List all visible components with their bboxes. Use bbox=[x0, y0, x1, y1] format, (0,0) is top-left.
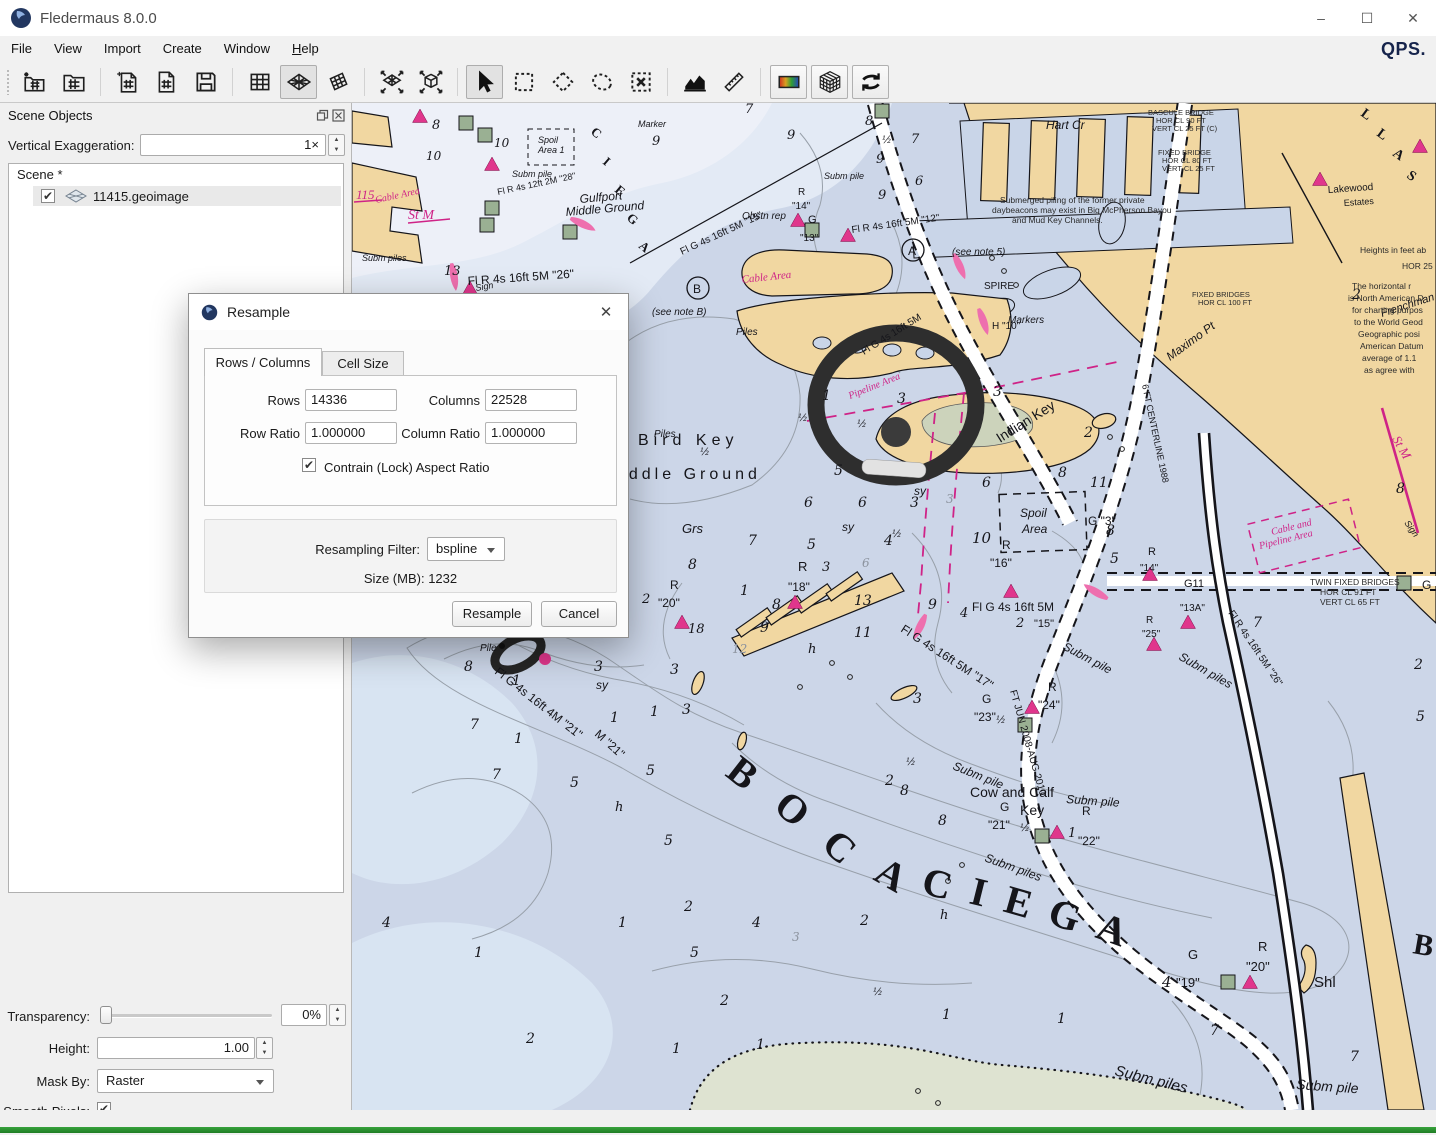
grid-view-button[interactable] bbox=[241, 65, 278, 99]
column-ratio-label: Column Ratio bbox=[390, 426, 480, 441]
map-label: 5 bbox=[807, 537, 816, 553]
toolbar-drag-handle[interactable] bbox=[6, 69, 11, 95]
map-label: 6 bbox=[804, 495, 813, 511]
map-label: 9 bbox=[928, 597, 937, 613]
fit-grid-icon bbox=[378, 68, 406, 96]
map-label: TWIN FIXED BRIDGES bbox=[1310, 577, 1400, 587]
transparency-slider[interactable] bbox=[100, 1006, 272, 1024]
map-label: Marker bbox=[638, 119, 667, 129]
map-label: Shl bbox=[1314, 974, 1336, 991]
rect-select-icon bbox=[511, 69, 537, 95]
map-label: 6 bbox=[982, 475, 991, 491]
progress-bar bbox=[0, 1127, 1436, 1133]
map-label: HOR CL 91 FT bbox=[1320, 587, 1376, 597]
map-label: HOR 25 bbox=[1402, 261, 1433, 271]
open-scene-button[interactable] bbox=[55, 65, 92, 99]
map-label: R bbox=[798, 559, 807, 574]
panel-title: Scene Objects bbox=[8, 108, 93, 123]
fit-cube-icon bbox=[417, 68, 445, 96]
daymark-square-icon bbox=[480, 218, 494, 232]
map-label: Pile bbox=[480, 643, 497, 654]
map-label: (see note B) bbox=[652, 307, 706, 318]
map-label: R bbox=[1048, 680, 1057, 694]
open-scene-icon bbox=[61, 69, 87, 95]
map-label: R bbox=[1258, 939, 1267, 954]
map-label: St M bbox=[408, 208, 435, 223]
map-label: 13 bbox=[444, 264, 461, 279]
map-label: H "10" bbox=[992, 321, 1021, 332]
map-label: B bbox=[693, 282, 701, 296]
polygon-select-icon bbox=[550, 69, 576, 95]
map-label: 8 bbox=[464, 659, 473, 675]
map-label: 7 bbox=[492, 767, 501, 783]
map-label: "18" bbox=[788, 580, 810, 594]
columns-label: Columns bbox=[400, 393, 480, 408]
map-label: "15" bbox=[1034, 618, 1054, 630]
map-label: as agree with bbox=[1364, 365, 1415, 375]
map-label: "24" bbox=[1038, 698, 1060, 712]
map-label: Submerged piling of the former private bbox=[1000, 195, 1145, 205]
lasso-select-icon bbox=[589, 69, 615, 95]
map-label: 3 bbox=[910, 495, 919, 511]
map-label: Area 1 bbox=[537, 145, 565, 155]
cursor-icon bbox=[472, 69, 498, 95]
map-label: 11 bbox=[854, 625, 872, 641]
map-label: American Datum bbox=[1360, 341, 1423, 351]
vertical-exaggeration-input[interactable]: 1× bbox=[140, 134, 326, 156]
map-label: HOR CL 100 FT bbox=[1198, 298, 1252, 307]
map-label: 10 bbox=[426, 149, 442, 163]
map-label: Spoil bbox=[538, 135, 559, 145]
map-label: ½ bbox=[892, 529, 902, 540]
map-label: 7 bbox=[745, 103, 754, 117]
rotate-view-button[interactable] bbox=[852, 65, 889, 99]
tree-row-geoimage[interactable]: ✔ 11415.geoimage bbox=[33, 186, 341, 206]
map-label: 2 bbox=[884, 773, 894, 789]
map-label: 8 bbox=[1396, 481, 1405, 497]
map-label: R bbox=[1082, 804, 1091, 818]
save-button[interactable] bbox=[187, 65, 224, 99]
map-label: 1 bbox=[822, 388, 831, 404]
map-label: "13" bbox=[800, 233, 819, 244]
map-label: 2 bbox=[1083, 425, 1093, 441]
surface-view-icon bbox=[286, 69, 312, 95]
height-label: Height: bbox=[0, 1041, 90, 1056]
map-label: daybeacons may exist in Big McPherson Ba… bbox=[992, 205, 1172, 215]
fledermaus-logo-icon bbox=[201, 304, 218, 321]
map-label: R bbox=[670, 578, 679, 592]
toolbar-separator bbox=[232, 68, 233, 96]
map-label: 2 bbox=[859, 913, 869, 929]
chevron-down-icon bbox=[256, 1080, 264, 1085]
map-label: R bbox=[1146, 615, 1153, 626]
map-label: 5 bbox=[646, 763, 655, 779]
lock-aspect-label: Contrain (Lock) Aspect Ratio bbox=[324, 460, 489, 475]
transparency-value[interactable]: 0% bbox=[281, 1004, 327, 1026]
map-label: 9 bbox=[878, 188, 886, 203]
grid-icon bbox=[247, 69, 273, 95]
map-label: Grs bbox=[682, 521, 703, 536]
dialog-title: Resample bbox=[227, 304, 290, 320]
map-label: for charting purpos bbox=[1352, 305, 1423, 315]
map-label: 3 bbox=[670, 662, 679, 678]
map-label: 8 bbox=[1058, 465, 1067, 481]
map-label: Fl G 4s 16ft 5M bbox=[972, 600, 1054, 614]
map-label: G bbox=[808, 214, 817, 226]
map-label: 10 bbox=[972, 529, 992, 547]
map-label: 5 bbox=[834, 463, 843, 479]
menu-window[interactable]: Window bbox=[213, 36, 281, 62]
map-label: Estates bbox=[1343, 196, 1374, 208]
new-object-button[interactable] bbox=[109, 65, 146, 99]
map-label: "14" bbox=[792, 201, 811, 212]
map-label: 2 bbox=[1413, 657, 1423, 673]
map-label: 4 bbox=[751, 915, 761, 931]
map-label: A bbox=[908, 244, 916, 258]
map-label: 1 bbox=[474, 945, 483, 961]
map-label: sy bbox=[596, 678, 609, 692]
map-label: 4 bbox=[1161, 973, 1172, 991]
colormap-icon bbox=[776, 69, 802, 95]
map-label: Spoil bbox=[1020, 506, 1047, 520]
map-label: Area bbox=[1021, 522, 1048, 536]
cube-grid-button[interactable] bbox=[811, 65, 848, 99]
spin-up-icon[interactable]: ▲ bbox=[329, 135, 344, 145]
menu-create[interactable]: Create bbox=[152, 36, 213, 62]
tab-rows-columns[interactable]: Rows / Columns bbox=[204, 348, 322, 376]
map-label: ½ bbox=[798, 413, 808, 424]
map-label: 3 bbox=[682, 702, 691, 718]
map-label: 3 bbox=[792, 930, 800, 944]
map-label: 3 bbox=[822, 560, 830, 575]
row-ratio-label: Row Ratio bbox=[225, 426, 300, 441]
tab-cell-size[interactable]: Cell Size bbox=[322, 351, 404, 376]
map-label: 1 bbox=[1068, 826, 1076, 841]
lock-aspect-checkbox[interactable]: ✔ bbox=[302, 458, 316, 472]
title-bar: Fledermaus 8.0.0 – ☐ ✕ bbox=[0, 0, 1436, 36]
map-label: 8 bbox=[772, 597, 781, 613]
map-label: 1 bbox=[756, 1037, 765, 1053]
map-label: 11 bbox=[1090, 475, 1108, 491]
map-label: 1 bbox=[512, 673, 521, 689]
map-label: "21" bbox=[988, 818, 1010, 832]
daymark-square-icon bbox=[1221, 975, 1235, 989]
daymark-square-icon bbox=[478, 128, 492, 142]
map-label: 4 bbox=[381, 915, 391, 931]
new-scene-icon bbox=[22, 69, 48, 95]
rows-label: Rows bbox=[225, 393, 300, 408]
fit-grid-button[interactable] bbox=[373, 65, 410, 99]
map-label: Subm pile bbox=[824, 171, 864, 181]
vertical-exaggeration-stepper[interactable]: ▲▼ bbox=[328, 134, 345, 156]
height-input[interactable]: 1.00 bbox=[97, 1037, 255, 1059]
map-label: 2 bbox=[683, 899, 693, 915]
filter-group: Resampling Filter: bspline Size (MB): 12… bbox=[204, 519, 617, 593]
column-ratio-input[interactable]: 1.000000 bbox=[485, 422, 577, 444]
clear-select-button[interactable] bbox=[622, 65, 659, 99]
map-label: Hart Cr bbox=[1046, 118, 1086, 132]
map-label: 18 bbox=[688, 622, 705, 637]
size-label: Size (MB): bbox=[364, 571, 425, 586]
open-object-button[interactable] bbox=[148, 65, 185, 99]
menu-view[interactable]: View bbox=[43, 36, 93, 62]
window-title: Fledermaus 8.0.0 bbox=[40, 10, 157, 27]
map-label: 5 bbox=[570, 775, 579, 791]
toolbar-separator bbox=[667, 68, 668, 96]
map-label: 1 bbox=[618, 915, 627, 931]
tilted-grid-icon bbox=[325, 69, 351, 95]
map-label: 9 bbox=[760, 620, 769, 636]
slider-handle[interactable] bbox=[100, 1006, 112, 1024]
map-label: 6 bbox=[915, 174, 923, 189]
map-label: G bbox=[982, 692, 991, 706]
map-label: 7 bbox=[1253, 615, 1262, 631]
clear-select-icon bbox=[628, 69, 654, 95]
save-icon bbox=[193, 69, 219, 95]
map-label: "22" bbox=[1078, 834, 1100, 848]
map-label: 6 bbox=[858, 495, 867, 511]
scene-tree-root[interactable]: Scene * bbox=[17, 167, 63, 182]
toolbar bbox=[0, 62, 1436, 103]
map-label: Heights in feet ab bbox=[1360, 245, 1426, 255]
map-label: "20" bbox=[658, 596, 680, 610]
map-label: "14" bbox=[1140, 563, 1159, 574]
map-label: ½ bbox=[857, 419, 867, 430]
map-label: and Mud Key Channels. bbox=[1012, 215, 1103, 225]
map-label: R bbox=[1002, 538, 1011, 552]
map-label: "13A" bbox=[1180, 603, 1205, 614]
map-label: 1 bbox=[514, 731, 523, 747]
qps-logo: QPS. bbox=[1381, 36, 1426, 62]
map-label: 13 bbox=[854, 593, 872, 609]
map-label: Geographic posi bbox=[1358, 329, 1420, 339]
geoimage-layer-icon bbox=[65, 189, 87, 203]
map-label: ½ bbox=[906, 757, 916, 768]
resample-dialog: Resample ✕ Rows / Columns Cell Size Rows… bbox=[188, 293, 629, 638]
rows-columns-panel: Rows 14336 Columns 22528 Row Ratio 1.000… bbox=[204, 375, 617, 506]
profile-button[interactable] bbox=[676, 65, 713, 99]
lasso-select-button[interactable] bbox=[583, 65, 620, 99]
map-label: 7 bbox=[911, 132, 920, 147]
map-label: 5 bbox=[690, 945, 699, 961]
map-label: 9 bbox=[876, 152, 884, 167]
daymark-square-icon bbox=[563, 225, 577, 239]
map-label: 8 bbox=[938, 813, 947, 829]
map-label: "25" bbox=[1142, 629, 1161, 640]
map-label: 3 bbox=[897, 391, 906, 407]
map-label: SPIRE bbox=[984, 281, 1014, 292]
map-label: ½ bbox=[1020, 823, 1030, 834]
map-label: 2 bbox=[641, 592, 650, 607]
map-label: 3 bbox=[594, 659, 603, 675]
minimize-button[interactable]: – bbox=[1298, 0, 1344, 36]
open-object-icon bbox=[154, 69, 180, 95]
map-label: 8 bbox=[900, 783, 909, 799]
status-bar bbox=[0, 1110, 1436, 1135]
tilted-grid-button[interactable] bbox=[319, 65, 356, 99]
map-label: h bbox=[615, 800, 623, 815]
surface-view-button[interactable] bbox=[280, 65, 317, 99]
map-label: "20" bbox=[1246, 959, 1270, 974]
map-label: ½ bbox=[996, 715, 1006, 726]
map-label: VERT CL 25 FT (C) bbox=[1152, 124, 1218, 133]
map-label: 3 bbox=[913, 691, 922, 707]
map-label: 12 bbox=[732, 642, 747, 656]
map-label: 10 bbox=[494, 136, 510, 150]
map-label: ½ bbox=[882, 135, 892, 146]
menu-help[interactable]: Help bbox=[281, 36, 330, 62]
mask-by-label: Mask By: bbox=[0, 1074, 90, 1089]
toolbar-separator bbox=[760, 68, 761, 96]
map-label: h bbox=[808, 642, 816, 657]
colormap-button[interactable] bbox=[770, 65, 807, 99]
row-ratio-input[interactable]: 1.000000 bbox=[305, 422, 397, 444]
magenta-dot-icon bbox=[539, 653, 551, 665]
polygon-select-button[interactable] bbox=[544, 65, 581, 99]
menu-file[interactable]: File bbox=[0, 36, 43, 62]
measure-button[interactable] bbox=[715, 65, 752, 99]
map-label: 5 bbox=[1416, 709, 1425, 725]
resampling-filter-label: Resampling Filter: bbox=[265, 542, 420, 557]
dialog-title-bar[interactable]: Resample ✕ bbox=[189, 294, 628, 330]
map-label: VERT CL 65 FT bbox=[1320, 597, 1380, 607]
map-label: 1 bbox=[650, 704, 659, 720]
map-label: ½ bbox=[700, 447, 710, 458]
map-label: 115 bbox=[356, 187, 375, 202]
new-object-icon bbox=[115, 69, 141, 95]
map-label: 1 bbox=[942, 1007, 951, 1023]
map-label: 5 bbox=[664, 833, 673, 849]
fit-cube-button[interactable] bbox=[412, 65, 449, 99]
dialog-close-button[interactable]: ✕ bbox=[584, 294, 628, 330]
daymark-square-icon bbox=[459, 116, 473, 130]
map-label: 1 bbox=[1057, 1011, 1066, 1027]
map-label: Key bbox=[1020, 802, 1044, 818]
transparency-stepper[interactable]: ▲▼ bbox=[329, 1004, 346, 1026]
map-label: "23" bbox=[974, 710, 996, 724]
daymark-square-icon bbox=[875, 104, 889, 118]
map-label: 1 bbox=[672, 1041, 681, 1057]
height-stepper[interactable]: ▲▼ bbox=[256, 1037, 273, 1059]
vertical-exaggeration-label: Vertical Exaggeration: bbox=[8, 138, 134, 153]
map-label: 8 bbox=[1106, 523, 1115, 539]
rows-input[interactable]: 14336 bbox=[305, 389, 397, 411]
map-label: 2 bbox=[1351, 287, 1361, 303]
size-row: Size (MB): 1232 bbox=[205, 571, 616, 586]
cancel-button[interactable]: Cancel bbox=[541, 601, 617, 627]
map-label: 8 bbox=[865, 114, 873, 129]
close-button[interactable]: ✕ bbox=[1390, 0, 1436, 36]
map-label: 9 bbox=[652, 134, 660, 149]
map-label: "19" bbox=[1176, 975, 1200, 990]
map-label: to the World Geod bbox=[1354, 317, 1423, 327]
new-scene-button[interactable] bbox=[16, 65, 53, 99]
mask-by-value: Raster bbox=[106, 1073, 144, 1088]
map-label: R bbox=[1148, 546, 1156, 558]
chevron-down-icon bbox=[487, 548, 495, 553]
map-label: 8 bbox=[432, 118, 440, 133]
map-label: 7 bbox=[1210, 1023, 1219, 1039]
map-label: "16" bbox=[990, 556, 1012, 570]
map-label: G11 bbox=[1184, 578, 1204, 590]
toolbar-separator bbox=[457, 68, 458, 96]
rect-select-button[interactable] bbox=[505, 65, 542, 99]
map-label: Piles bbox=[736, 327, 758, 338]
map-label: 2 bbox=[1015, 616, 1024, 631]
map-label: 2 bbox=[525, 1031, 535, 1047]
map-label: R bbox=[798, 187, 805, 198]
map-label: average of 1.1 bbox=[1362, 353, 1417, 363]
close-panel-icon[interactable] bbox=[332, 109, 345, 122]
cube-grid-icon bbox=[817, 69, 843, 95]
map-label: ½ bbox=[873, 987, 883, 998]
toolbar-separator bbox=[364, 68, 365, 96]
map-label: 4 bbox=[959, 606, 968, 621]
size-value: 1232 bbox=[428, 571, 457, 586]
transparency-label: Transparency: bbox=[0, 1009, 90, 1024]
layer-name: 11415.geoimage bbox=[93, 189, 189, 204]
map-label: h bbox=[940, 908, 948, 923]
map-label: 8 bbox=[688, 557, 697, 573]
fledermaus-logo-icon bbox=[10, 7, 32, 29]
map-label: 7 bbox=[1350, 1049, 1359, 1065]
map-label: G bbox=[1188, 947, 1198, 962]
select-cursor-button[interactable] bbox=[466, 65, 503, 99]
daymark-square-icon bbox=[485, 201, 499, 215]
map-label: Subm piles bbox=[362, 253, 407, 263]
map-label: G bbox=[1000, 800, 1009, 814]
menu-bar: File View Import Create Window Help QPS. bbox=[0, 36, 1436, 62]
map-label: G bbox=[1422, 578, 1431, 592]
columns-input[interactable]: 22528 bbox=[485, 389, 577, 411]
map-label: 7 bbox=[470, 717, 479, 733]
map-label: 9 bbox=[787, 128, 795, 143]
filter-value: bspline bbox=[436, 541, 477, 556]
map-label: 2 bbox=[719, 993, 729, 1009]
profile-icon bbox=[682, 69, 708, 95]
map-label: 5 bbox=[1110, 551, 1119, 567]
fledermaus-app: { "colors":{"land":"#f1d7a1","water":"#c… bbox=[0, 0, 1436, 1135]
daymark-square-icon bbox=[1035, 829, 1049, 843]
maximize-button[interactable]: ☐ bbox=[1344, 0, 1390, 36]
map-label: 6 bbox=[862, 556, 870, 570]
map-label: sy bbox=[842, 520, 855, 534]
filter-dropdown[interactable]: bspline bbox=[427, 537, 505, 561]
map-label: (see note 5) bbox=[952, 247, 1005, 258]
toolbar-separator bbox=[100, 68, 101, 96]
layer-visibility-checkbox[interactable]: ✔ bbox=[41, 189, 55, 203]
map-label: VERT CL 25 FT bbox=[1162, 164, 1215, 173]
map-label: 3 bbox=[946, 492, 954, 506]
map-label: 7 bbox=[748, 533, 757, 549]
menu-import[interactable]: Import bbox=[93, 36, 152, 62]
mask-by-dropdown[interactable]: Raster bbox=[97, 1069, 274, 1093]
rotate-icon bbox=[857, 68, 885, 96]
map-label: 1 bbox=[740, 583, 749, 599]
ruler-icon bbox=[721, 69, 747, 95]
resample-button[interactable]: Resample bbox=[452, 601, 532, 627]
map-label: 1 bbox=[610, 710, 619, 726]
map-label: Piles bbox=[654, 429, 676, 440]
float-panel-icon[interactable] bbox=[316, 109, 329, 122]
map-label: 3 bbox=[993, 384, 1002, 400]
spin-down-icon[interactable]: ▼ bbox=[329, 145, 344, 155]
